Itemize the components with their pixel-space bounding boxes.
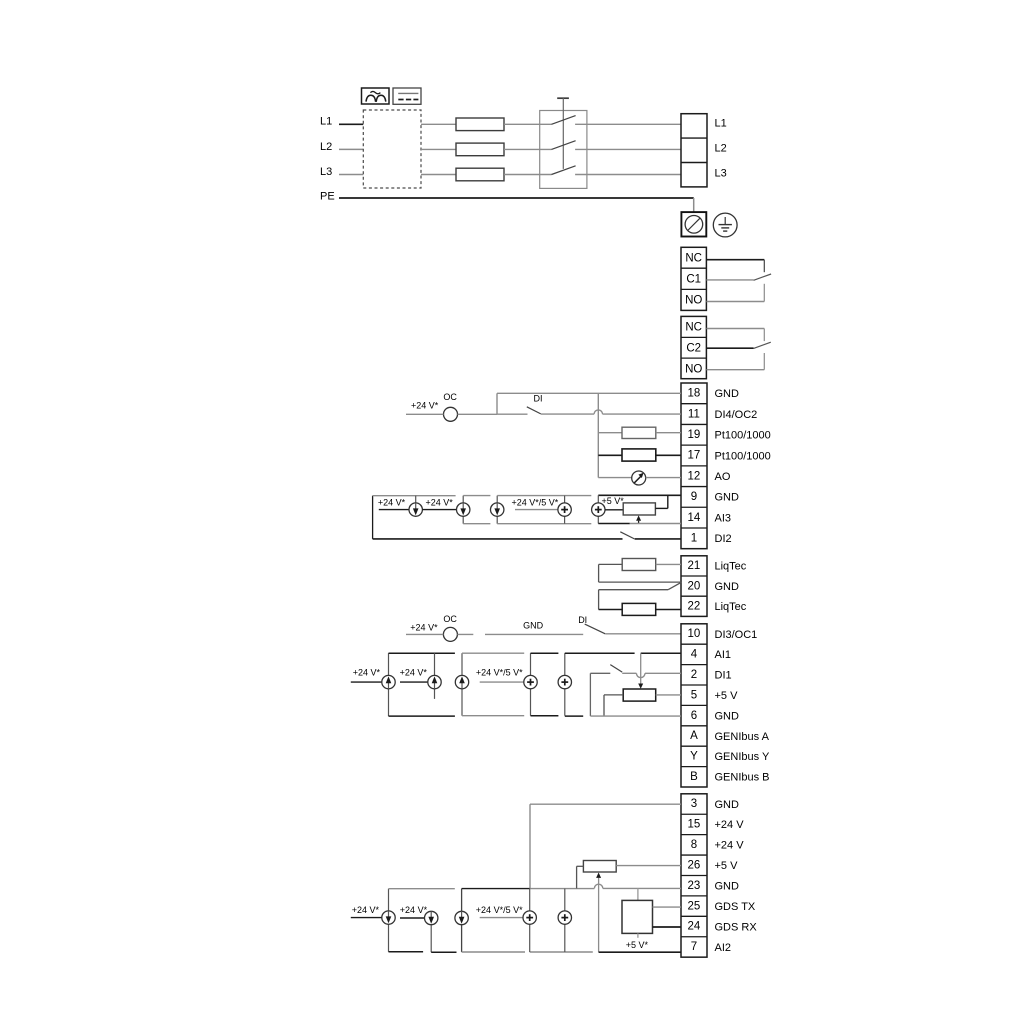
svg-text:11: 11 <box>688 408 700 420</box>
svg-text:25: 25 <box>688 900 701 912</box>
svg-text:B: B <box>690 771 698 783</box>
svg-text:C1: C1 <box>686 274 701 286</box>
svg-text:26: 26 <box>688 859 701 871</box>
svg-text:GND: GND <box>715 710 740 722</box>
svg-text:+5 V*: +5 V* <box>626 940 649 950</box>
svg-text:GND: GND <box>715 581 740 593</box>
svg-text:9: 9 <box>691 491 697 503</box>
svg-text:20: 20 <box>688 580 701 592</box>
svg-text:23: 23 <box>688 880 701 892</box>
svg-text:+24 V*: +24 V* <box>353 668 381 678</box>
svg-text:GENIbus B: GENIbus B <box>715 772 770 784</box>
svg-text:GND: GND <box>715 388 740 400</box>
svg-text:LiqTec: LiqTec <box>715 601 747 613</box>
svg-text:AI2: AI2 <box>715 942 732 954</box>
svg-text:DI2: DI2 <box>715 533 732 545</box>
svg-text:L3: L3 <box>715 168 727 180</box>
svg-text:DI: DI <box>534 394 543 404</box>
svg-text:15: 15 <box>688 819 701 831</box>
svg-text:GENIbus Y: GENIbus Y <box>715 751 770 763</box>
svg-text:GND: GND <box>715 492 740 504</box>
svg-text:22: 22 <box>688 601 701 613</box>
svg-text:24: 24 <box>688 921 701 933</box>
svg-text:+24 V*: +24 V* <box>426 498 454 508</box>
svg-text:AI3: AI3 <box>715 512 732 524</box>
svg-text:AI1: AI1 <box>715 649 732 661</box>
svg-text:NC: NC <box>685 322 702 334</box>
svg-text:Pt100/1000: Pt100/1000 <box>715 450 771 462</box>
svg-text:DI3/OC1: DI3/OC1 <box>715 629 758 641</box>
svg-text:L2: L2 <box>320 141 332 153</box>
svg-text:6: 6 <box>691 710 697 722</box>
svg-text:21: 21 <box>688 560 701 572</box>
svg-text:A: A <box>690 730 698 742</box>
svg-text:17: 17 <box>688 450 701 462</box>
svg-text:14: 14 <box>688 512 701 524</box>
svg-text:+24 V: +24 V <box>715 840 745 852</box>
svg-text:AO: AO <box>715 471 731 483</box>
svg-text:GND: GND <box>715 799 740 811</box>
svg-text:OC: OC <box>443 392 457 402</box>
svg-text:LiqTec: LiqTec <box>715 561 747 573</box>
svg-text:+24 V*/5 V*: +24 V*/5 V* <box>476 668 523 678</box>
svg-text:PE: PE <box>320 190 335 202</box>
svg-text:NO: NO <box>685 295 702 307</box>
svg-text:+24 V*/5 V*: +24 V*/5 V* <box>512 498 559 508</box>
svg-text:GENIbus A: GENIbus A <box>715 731 770 743</box>
svg-text:L1: L1 <box>715 117 727 129</box>
svg-text:+24 V*: +24 V* <box>411 401 439 411</box>
svg-text:DI1: DI1 <box>715 670 732 682</box>
svg-text:+24 V*/5 V*: +24 V*/5 V* <box>476 905 523 915</box>
svg-text:2: 2 <box>691 669 697 681</box>
svg-text:18: 18 <box>688 388 701 400</box>
svg-text:GDS TX: GDS TX <box>715 901 756 913</box>
svg-text:L3: L3 <box>320 166 332 178</box>
svg-text:+24 V*: +24 V* <box>378 498 406 508</box>
svg-text:GDS RX: GDS RX <box>715 921 758 933</box>
svg-text:L1: L1 <box>320 115 332 127</box>
svg-text:19: 19 <box>688 429 701 441</box>
svg-text:+24 V*: +24 V* <box>400 668 428 678</box>
svg-text:+24 V: +24 V <box>715 819 745 831</box>
svg-text:1: 1 <box>691 533 697 545</box>
svg-text:GND: GND <box>523 621 544 631</box>
svg-text:5: 5 <box>691 689 697 701</box>
svg-text:7: 7 <box>691 941 697 953</box>
svg-text:NC: NC <box>685 253 702 265</box>
svg-text:Y: Y <box>690 751 698 763</box>
svg-text:L2: L2 <box>715 142 727 154</box>
svg-text:OC: OC <box>443 614 457 624</box>
svg-text:+24 V*: +24 V* <box>352 905 380 915</box>
svg-text:GND: GND <box>715 880 740 892</box>
svg-text:C2: C2 <box>686 343 701 355</box>
svg-text:Pt100/1000: Pt100/1000 <box>715 430 771 442</box>
svg-text:DI4/OC2: DI4/OC2 <box>715 409 758 421</box>
svg-text:8: 8 <box>691 839 697 851</box>
svg-text:+24 V*: +24 V* <box>400 905 428 915</box>
svg-text:10: 10 <box>688 628 701 640</box>
svg-text:12: 12 <box>688 470 701 482</box>
svg-text:3: 3 <box>691 798 697 810</box>
svg-text:4: 4 <box>691 649 698 661</box>
svg-text:+5 V*: +5 V* <box>602 496 625 506</box>
svg-text:+5 V: +5 V <box>715 860 739 872</box>
svg-text:+24 V*: +24 V* <box>410 623 438 633</box>
svg-text:DI: DI <box>578 615 587 625</box>
svg-text:NO: NO <box>685 363 702 375</box>
svg-text:+5 V: +5 V <box>715 690 739 702</box>
